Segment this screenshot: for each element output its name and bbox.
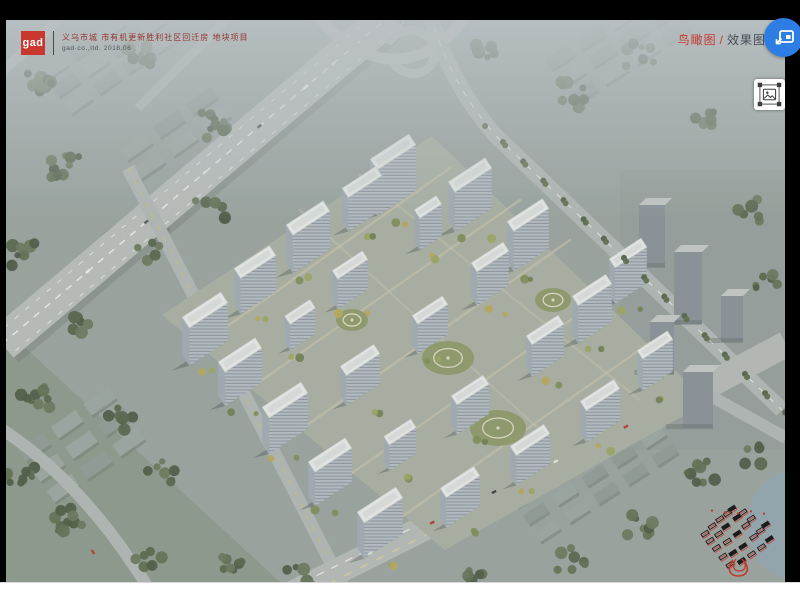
image-viewer-window: gad 义乌市城 市有机更新胜利社区回迁房 地块项目 gad·co.,ltd. … <box>0 0 800 600</box>
project-title: 义乌市城 市有机更新胜利社区回迁房 地块项目 <box>62 33 248 43</box>
picture-in-picture-icon <box>772 26 796 50</box>
view-label-secondary: 效果图 <box>727 33 766 47</box>
rendering-viewport <box>6 20 785 582</box>
view-label-separator: / <box>720 33 724 47</box>
view-type-label: 鸟瞰图/效果图 <box>678 31 766 48</box>
view-label-primary: 鸟瞰图 <box>678 33 717 47</box>
image-select-icon <box>756 81 783 108</box>
left-letterbox <box>0 20 6 582</box>
image-capture-button[interactable] <box>754 79 785 110</box>
title-divider <box>53 31 54 55</box>
bottom-bar <box>0 582 800 600</box>
project-subtitle: gad·co.,ltd. 2018.06 <box>62 45 248 53</box>
top-letterbox <box>0 0 800 20</box>
right-letterbox <box>785 20 800 582</box>
float-window-button[interactable] <box>764 18 800 57</box>
project-title-block: gad 义乌市城 市有机更新胜利社区回迁房 地块项目 gad·co.,ltd. … <box>21 31 248 55</box>
gad-logo: gad <box>21 31 45 55</box>
aerial-rendering <box>6 20 785 582</box>
